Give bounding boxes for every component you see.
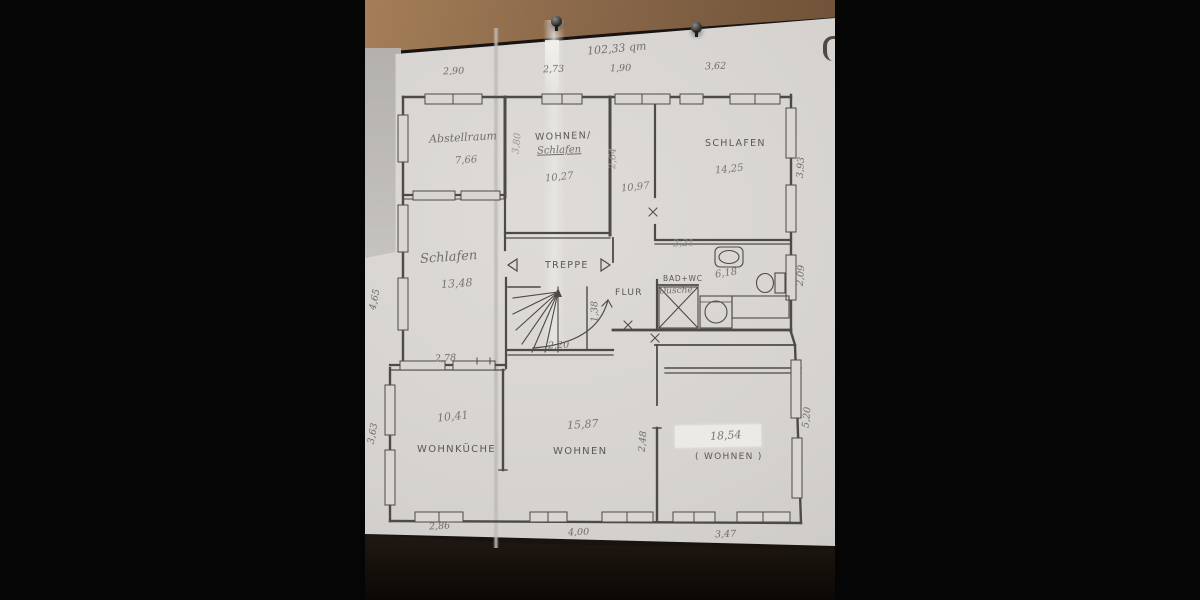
- washing-machine-icon: [700, 296, 732, 328]
- room-label-flur: FLUR: [615, 288, 643, 298]
- dim-bad-top: 2,21: [673, 237, 695, 249]
- room-label-bad-wc: BAD+WC: [663, 274, 703, 283]
- room-label-schlafen-gross: SCHLAFEN: [705, 138, 766, 149]
- dim-top-1: 2,90: [443, 66, 465, 78]
- dim-top-4: 3,62: [705, 61, 727, 73]
- room-label-treppe: TREPPE: [545, 260, 589, 271]
- dim-treppe-tiefe: 1,38: [590, 292, 601, 332]
- dim-top-2: 2,73: [543, 64, 565, 76]
- sink-icon: [715, 247, 743, 267]
- room-label-wohnen-schlafen-2: Schlafen: [537, 144, 581, 157]
- dim-bottom-2: 4,00: [568, 527, 590, 539]
- dim-schlafen-unten: 2,78: [435, 352, 457, 364]
- area-abstellraum: 7,66: [455, 154, 478, 166]
- arrow-right-icon: [601, 259, 610, 271]
- pin-stem: [555, 25, 558, 31]
- pin-stem: [695, 31, 698, 37]
- dim-bottom-3: 3,47: [715, 529, 737, 541]
- room-label-wohnen-klammer: ( WOHNEN ): [695, 452, 763, 462]
- dim-treppe-breite: 2,20: [548, 340, 570, 352]
- arrow-left-icon: [508, 259, 517, 271]
- room-label-wohnen: WOHNEN: [553, 446, 607, 457]
- dim-bottom-1: 2,86: [429, 520, 451, 532]
- room-label-wohnkueche: WOHNKÜCHE: [417, 444, 496, 455]
- area-wohnen-klammer: 18,54: [710, 428, 742, 443]
- dim-flur-wand: 2,64: [607, 140, 619, 176]
- area-wohnen: 15,87: [567, 417, 599, 432]
- dim-top-3: 1,90: [610, 63, 632, 75]
- floorplan-photo: 102,33 qm 2,90 2,73 1,90 3,62 Abstellrau…: [365, 0, 835, 600]
- area-schlafen-mitte: 13,48: [441, 276, 473, 291]
- push-pin-icon: [551, 16, 562, 27]
- bath-counter: [732, 296, 789, 318]
- wall-hook-icon: [823, 36, 835, 61]
- room-label-wohnen-schlafen: WOHNEN/: [535, 130, 592, 143]
- push-pin-icon: [691, 22, 702, 33]
- toilet-icon: [757, 273, 786, 293]
- room-label-dusche: Dusche: [659, 285, 693, 296]
- screenshot: 102,33 qm 2,90 2,73 1,90 3,62 Abstellrau…: [0, 0, 1200, 600]
